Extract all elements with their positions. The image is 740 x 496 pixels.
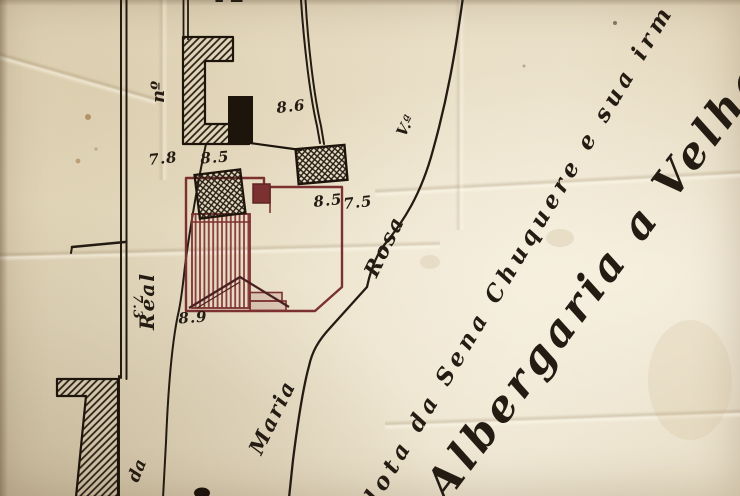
annex-black-crosshatch-center	[194, 169, 245, 218]
property-line-top	[184, 0, 189, 40]
road-left	[119, 0, 127, 496]
measure-7-5: 7.5	[343, 194, 374, 212]
wall-left-arm	[71, 242, 125, 253]
measure-8-5-mid: 8.5	[313, 192, 344, 210]
street-label-numero: nº	[150, 81, 168, 103]
partial-letter-top: A	[216, 0, 242, 8]
measure-7-8: 7.8	[148, 150, 179, 168]
measure-8-5-top: 8.5	[200, 150, 230, 167]
annex-black-crosshatch-east	[296, 145, 348, 184]
building-black-north	[183, 37, 301, 150]
measure-8-6: 8.6	[276, 98, 307, 116]
ink-blob	[194, 488, 210, 496]
measure-8-9: 8.9	[178, 310, 208, 327]
street-label-real: Real	[137, 272, 157, 330]
scanned-map-sheet: A nº 8.6 7.8 8.5 8.5 7.5 7.3 8.9 Real V.…	[0, 0, 740, 496]
road-right-diagonal	[301, 0, 324, 144]
building-black-southwest	[57, 379, 118, 496]
